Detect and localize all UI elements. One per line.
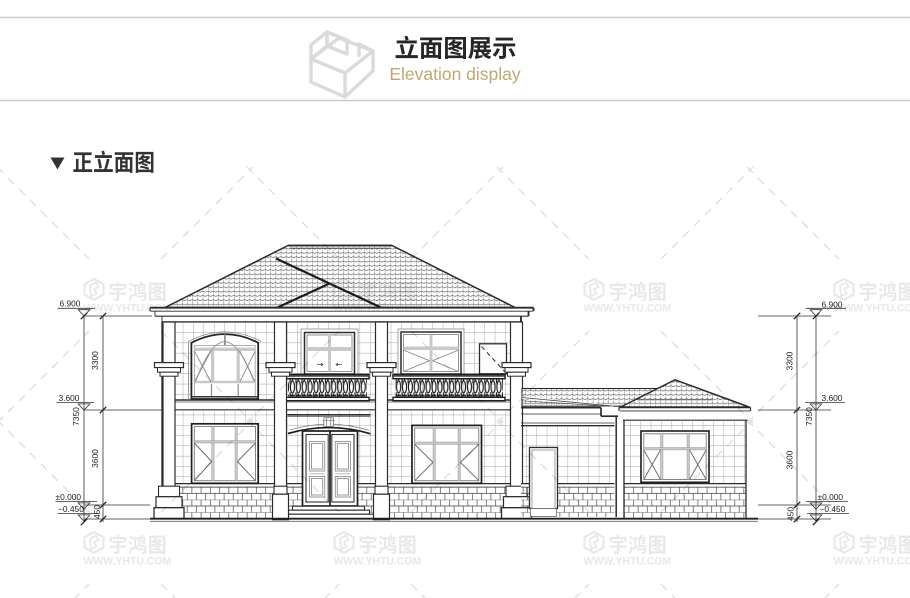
svg-text:7350: 7350 xyxy=(804,407,814,426)
svg-text:−0.450: −0.450 xyxy=(58,504,84,514)
svg-text:WWW.YHTU.COM: WWW.YHTU.COM xyxy=(84,303,172,315)
svg-text:WWW.YHTU.COM: WWW.YHTU.COM xyxy=(834,556,910,568)
svg-text:WWW.YHTU.COM: WWW.YHTU.COM xyxy=(84,556,172,568)
svg-text:3600: 3600 xyxy=(90,449,100,468)
svg-text:WWW.YHTU.COM: WWW.YHTU.COM xyxy=(334,556,422,568)
svg-text:7350: 7350 xyxy=(71,407,81,426)
svg-text:3.600: 3.600 xyxy=(822,393,843,403)
svg-text:WWW.YHTU.COM: WWW.YHTU.COM xyxy=(584,556,672,568)
svg-text:3300: 3300 xyxy=(90,351,100,370)
svg-text:3.600: 3.600 xyxy=(59,393,80,403)
svg-text:−0.450: −0.450 xyxy=(820,504,846,514)
svg-text:WWW.YHTU.COM: WWW.YHTU.COM xyxy=(584,303,672,315)
svg-text:6.900: 6.900 xyxy=(60,299,81,309)
svg-text:WWW.YHTU.COM: WWW.YHTU.COM xyxy=(834,303,910,315)
svg-text:3300: 3300 xyxy=(785,351,795,370)
svg-text:WWW.YHTU.COM: WWW.YHTU.COM xyxy=(334,303,422,315)
svg-text:450: 450 xyxy=(92,505,102,519)
svg-text:±0.000: ±0.000 xyxy=(818,492,844,502)
svg-text:450: 450 xyxy=(786,507,796,521)
